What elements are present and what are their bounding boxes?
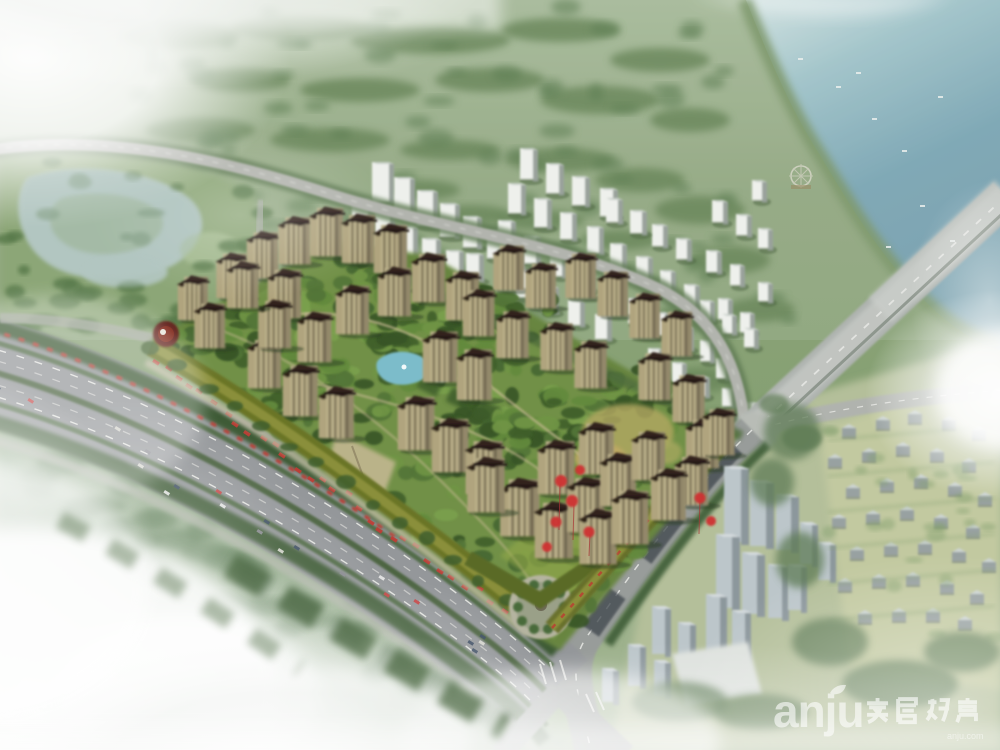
- svg-text:anju.com: anju.com: [947, 731, 984, 741]
- svg-text:anju: anju: [773, 685, 864, 737]
